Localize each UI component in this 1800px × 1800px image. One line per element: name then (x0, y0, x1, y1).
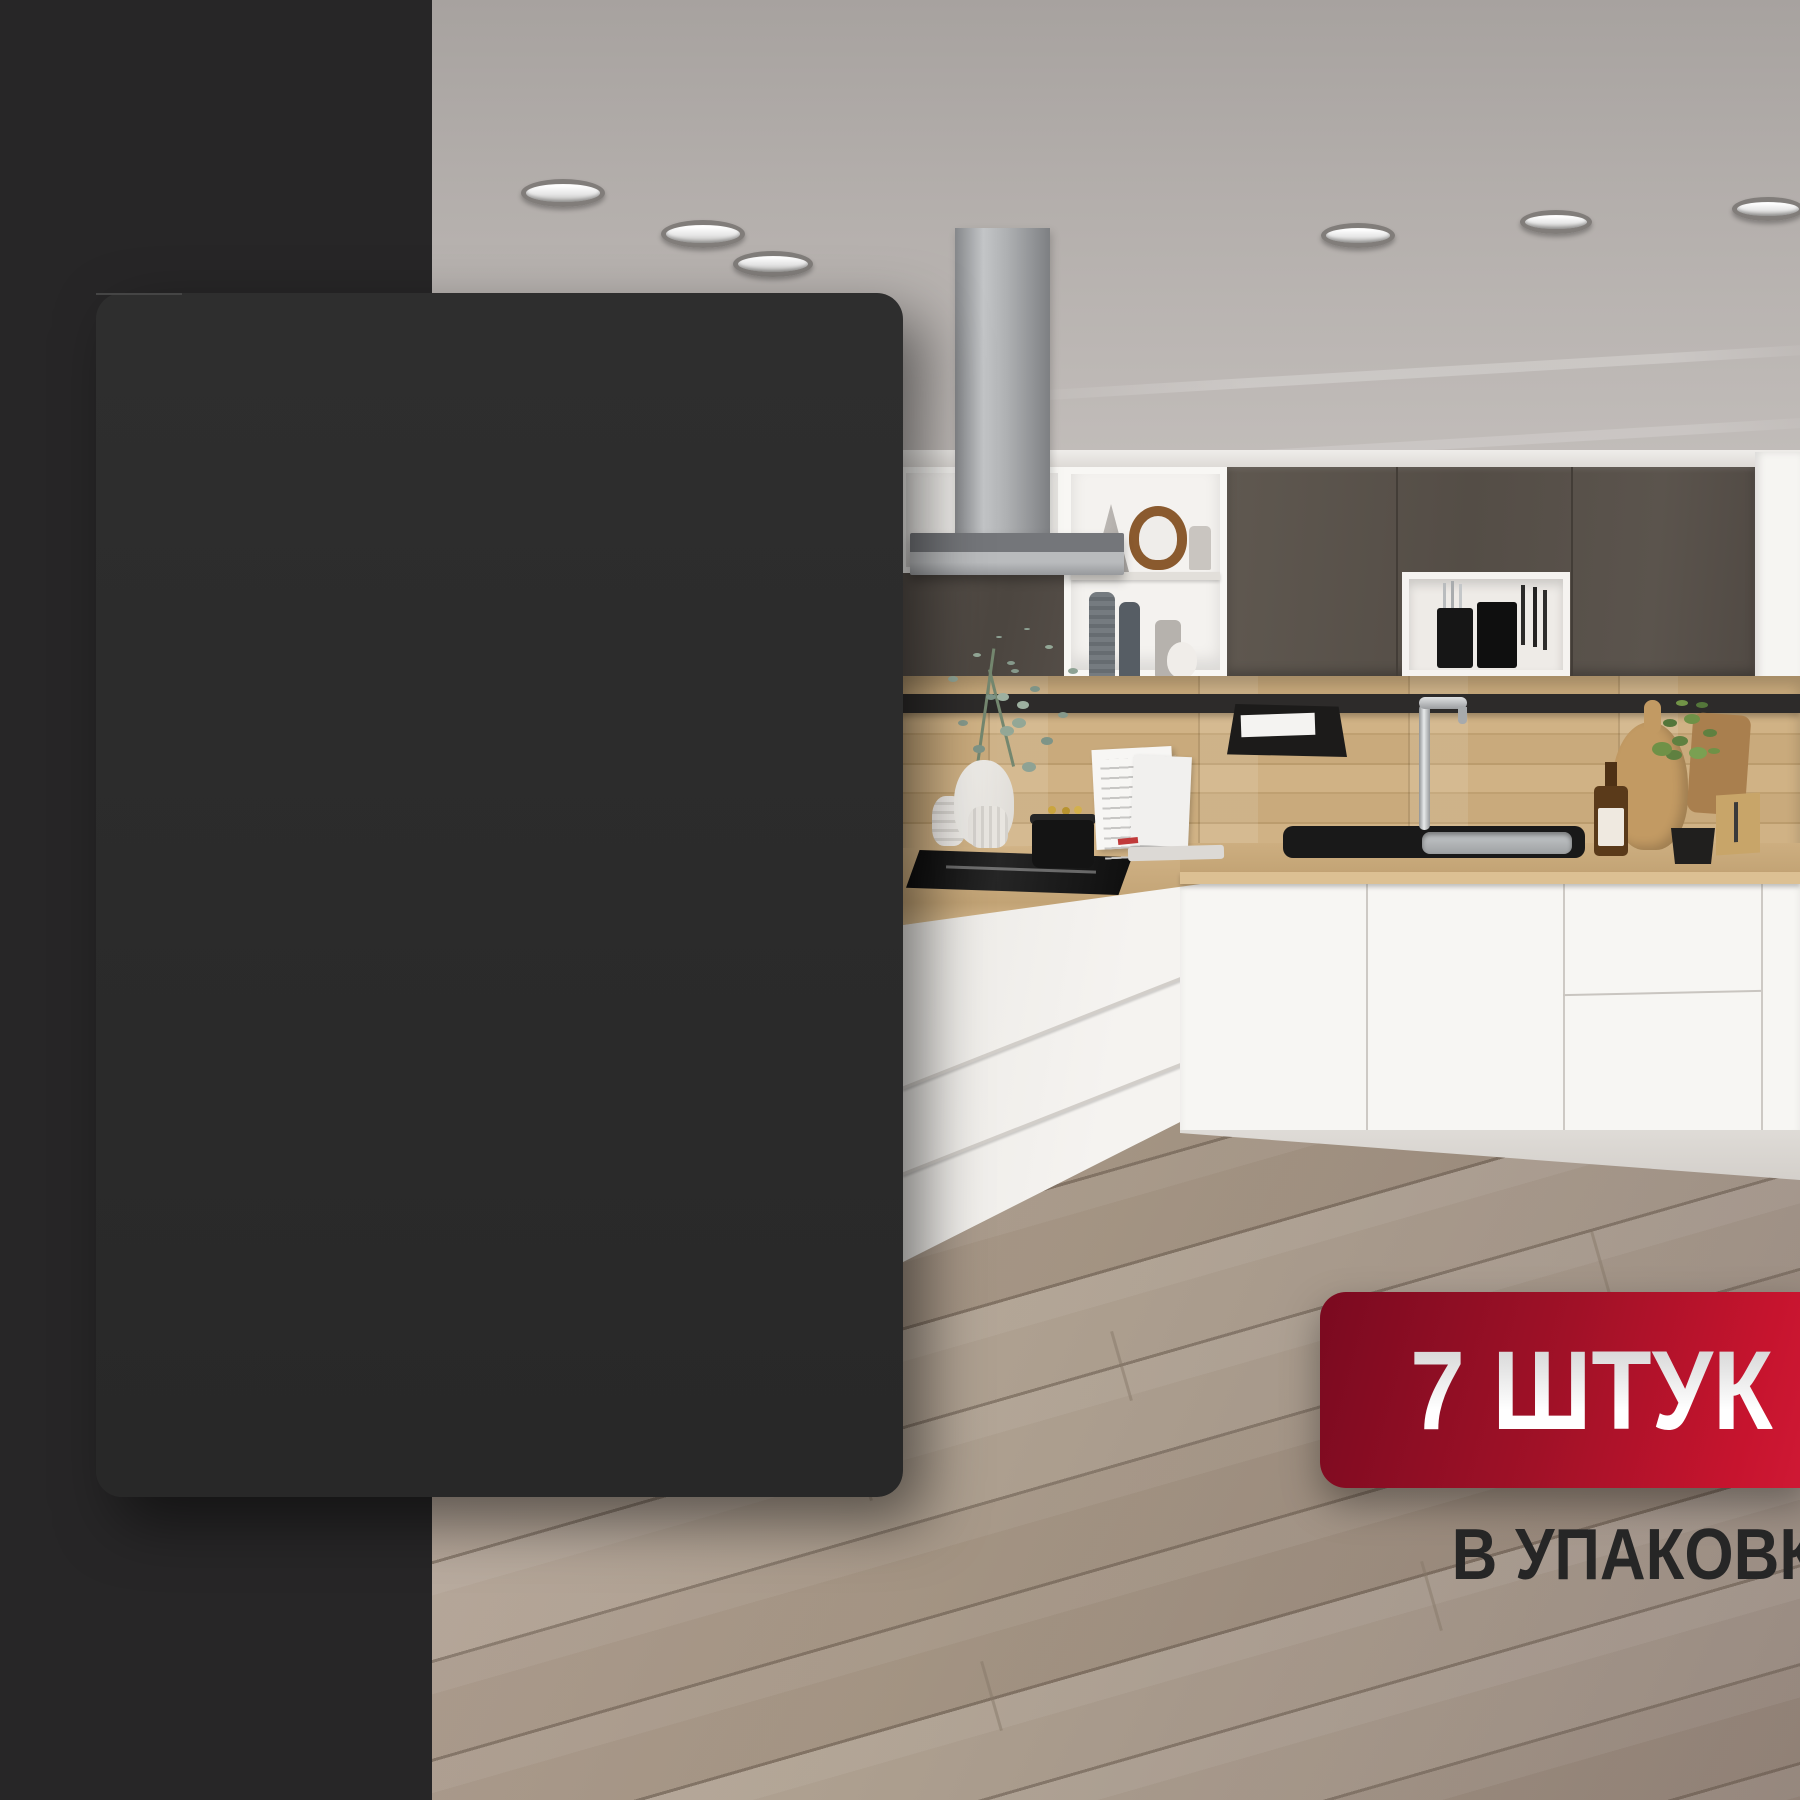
soffit-highlight (992, 343, 1800, 403)
decor-bottle (1119, 602, 1140, 678)
door-gap (1366, 880, 1368, 1130)
drawer-gap (1563, 990, 1761, 996)
quantity-badge: 7 ШТУК (1320, 1292, 1800, 1488)
knife-block (1716, 792, 1760, 855)
utensil-cup (1477, 602, 1517, 668)
door-gap (1563, 880, 1565, 1130)
oil-bottle (1594, 762, 1628, 856)
package-caption: В УПАКОВКЕ (1452, 1512, 1769, 1602)
utensil-cup (1437, 608, 1473, 668)
potted-plant (1652, 742, 1672, 756)
bottle-label (1598, 808, 1624, 846)
decor-bottle (1089, 592, 1115, 678)
utensil-rail (900, 694, 1800, 713)
receipt-paper (1130, 755, 1192, 847)
drawer-gap (901, 973, 1191, 1089)
cabinet-seam (1396, 467, 1398, 677)
ceiling-spotlight (733, 251, 813, 277)
pot-body (1032, 820, 1094, 868)
faucet-tip (1458, 707, 1467, 724)
wall-cabinet-dark (900, 573, 1067, 677)
ceiling-spotlight (1321, 223, 1395, 248)
ceiling-spotlight (661, 220, 745, 248)
decor-ring (1129, 506, 1187, 570)
spec-row-lock: ТИП ЗАМКА: «UNI FIT» (96, 293, 182, 341)
quantity-text: 7 ШТУК (1410, 1326, 1773, 1455)
ceiling-spotlight (1520, 210, 1592, 234)
decor-vase (1189, 526, 1211, 570)
product-infographic: ПОВЕРХНОСТЬ: МАТОВАЯ ФАСКА: С 4-Х СТОРОН… (0, 0, 1800, 1800)
vase-striped (968, 806, 1008, 848)
specs-card: ПОВЕРХНОСТЬ: МАТОВАЯ ФАСКА: С 4-Х СТОРОН… (96, 293, 903, 1497)
paper-towels (1241, 713, 1316, 738)
countertop-edge (1180, 872, 1800, 884)
hood-canopy (910, 533, 1124, 575)
paper-towel-holder (1227, 704, 1347, 757)
hood-duct (955, 228, 1050, 540)
ceiling-spotlight (521, 179, 605, 207)
sink-basin (1422, 832, 1572, 854)
knife-slot (1734, 802, 1738, 842)
base-cabinets-right (1180, 880, 1800, 1130)
knives (1521, 585, 1525, 645)
pot-knob (1048, 806, 1056, 814)
door-gap (1761, 880, 1763, 1130)
counter-tray (1128, 845, 1224, 862)
induction-hob (906, 850, 1132, 895)
eucalyptus-leaves (1022, 762, 1036, 772)
ceiling-spotlight (1732, 197, 1800, 221)
cooking-pot (1030, 806, 1096, 868)
faucet (1419, 704, 1430, 830)
cabinet-seam (1571, 467, 1573, 677)
cutting-board-handle (1644, 700, 1661, 734)
plant-pot (1668, 828, 1718, 864)
utensil-niche (1402, 572, 1570, 677)
decor-vase-white (1167, 642, 1197, 678)
